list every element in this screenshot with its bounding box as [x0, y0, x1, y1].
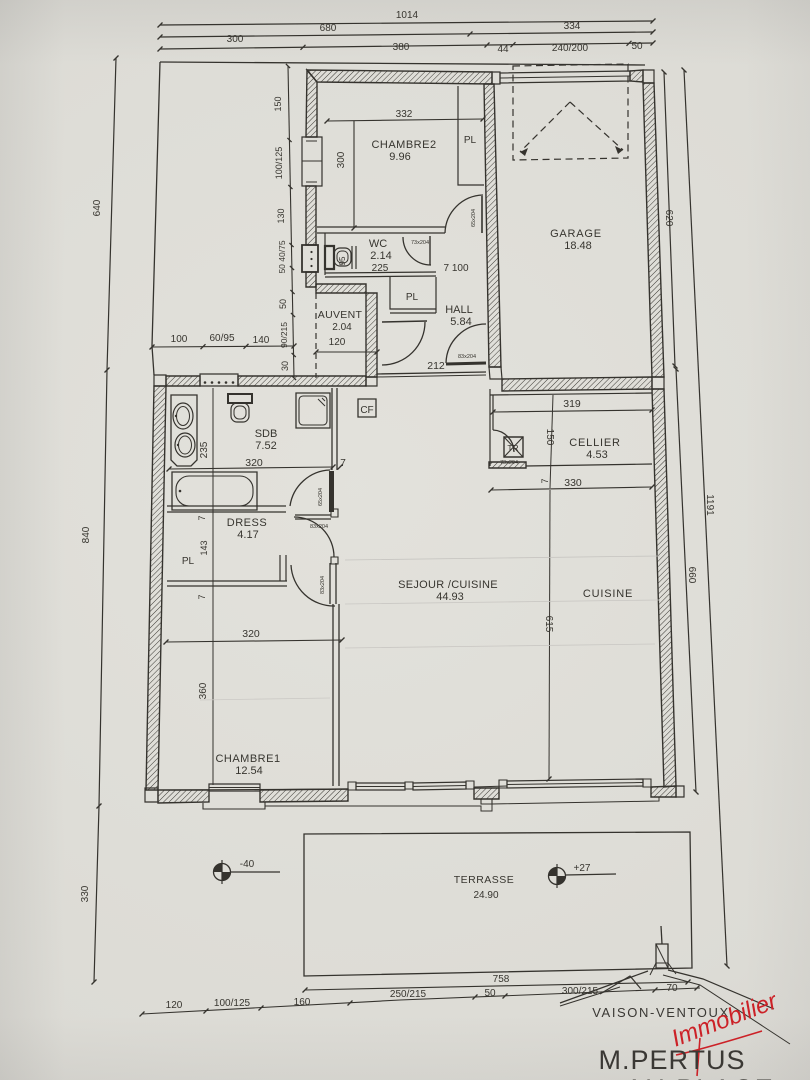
svg-text:7: 7 [540, 478, 550, 483]
svg-text:1014: 1014 [396, 10, 419, 21]
svg-text:100/125: 100/125 [214, 998, 251, 1009]
svg-text:332: 332 [396, 109, 413, 120]
svg-text:SEJOUR /CUISINE: SEJOUR /CUISINE [398, 579, 498, 591]
svg-text:CF: CF [360, 405, 373, 416]
svg-text:7: 7 [197, 515, 207, 520]
svg-text:330: 330 [80, 885, 91, 902]
svg-text:DRESS: DRESS [227, 517, 267, 529]
svg-text:7: 7 [197, 594, 207, 599]
svg-text:840: 840 [81, 526, 92, 543]
svg-text:2.04: 2.04 [332, 322, 352, 333]
svg-text:70: 70 [666, 983, 678, 994]
svg-text:240/200: 240/200 [552, 43, 589, 54]
svg-text:AUVENT: AUVENT [318, 309, 363, 321]
svg-text:7.52: 7.52 [255, 440, 276, 452]
svg-text:9.96: 9.96 [389, 151, 410, 163]
svg-text:360: 360 [198, 682, 209, 699]
svg-text:HALL: HALL [445, 304, 473, 316]
svg-text:GARAGE: GARAGE [550, 228, 602, 240]
svg-text:334: 334 [564, 21, 581, 32]
svg-text:100: 100 [171, 334, 188, 345]
svg-text:120: 120 [329, 337, 346, 348]
svg-text:250/215: 250/215 [390, 989, 427, 1000]
svg-text:380: 380 [393, 42, 410, 53]
svg-text:300: 300 [336, 151, 347, 168]
svg-text:12.54: 12.54 [235, 765, 263, 777]
svg-text:2.14: 2.14 [370, 250, 391, 262]
svg-text:5.84: 5.84 [450, 316, 471, 328]
svg-text:90/215: 90/215 [279, 322, 289, 348]
svg-text:CUISINE: CUISINE [583, 588, 633, 600]
svg-text:330: 330 [564, 477, 582, 489]
svg-text:640: 640 [92, 199, 103, 216]
svg-text:CHAMBRE2: CHAMBRE2 [371, 139, 436, 151]
svg-text:4.17: 4.17 [237, 529, 258, 541]
svg-text:WC: WC [369, 238, 387, 250]
svg-text:83x204: 83x204 [310, 524, 328, 530]
svg-text:PL: PL [182, 556, 195, 567]
svg-text:PL: PL [464, 135, 477, 146]
svg-text:M.PERTUS: M.PERTUS [598, 1045, 745, 1075]
svg-text:AU PLACE: AU PLACE [625, 1074, 775, 1080]
svg-text:44: 44 [497, 44, 509, 55]
svg-text:680: 680 [320, 23, 337, 34]
svg-text:758: 758 [493, 974, 510, 985]
svg-text:1191: 1191 [704, 494, 715, 516]
svg-text:95: 95 [338, 256, 347, 265]
svg-text:65x204: 65x204 [471, 209, 477, 227]
svg-text:50 40/75: 50 40/75 [277, 240, 287, 273]
svg-text:44.93: 44.93 [436, 591, 464, 603]
svg-text:320: 320 [245, 457, 263, 469]
svg-text:120: 120 [166, 1000, 183, 1011]
svg-text:18.48: 18.48 [564, 240, 592, 252]
svg-text:CELLIER: CELLIER [569, 437, 620, 449]
svg-text:100/125: 100/125 [274, 147, 284, 180]
svg-text:143: 143 [199, 540, 209, 555]
svg-text:235: 235 [199, 441, 210, 458]
svg-text:4.53: 4.53 [586, 449, 607, 461]
svg-text:7 100: 7 100 [443, 263, 468, 274]
svg-text:7: 7 [340, 458, 346, 469]
svg-text:150: 150 [273, 96, 283, 111]
svg-text:+27: +27 [574, 863, 591, 874]
svg-text:50: 50 [631, 41, 643, 52]
svg-text:24.90: 24.90 [473, 890, 498, 901]
svg-text:-40: -40 [240, 859, 255, 870]
svg-text:TERRASSE: TERRASSE [454, 874, 515, 886]
svg-text:PL: PL [406, 292, 419, 303]
svg-text:83x204: 83x204 [458, 354, 476, 360]
svg-text:30: 30 [280, 361, 290, 371]
svg-text:83x204: 83x204 [320, 576, 326, 594]
svg-text:140: 140 [253, 335, 270, 346]
svg-text:620: 620 [663, 210, 674, 227]
svg-text:212: 212 [427, 360, 445, 372]
svg-text:60/95: 60/95 [209, 333, 234, 344]
svg-text:319: 319 [563, 398, 581, 410]
svg-text:CHAMBRE1: CHAMBRE1 [215, 753, 280, 765]
svg-text:150: 150 [544, 429, 555, 446]
svg-text:65x204: 65x204 [318, 488, 324, 506]
svg-text:73x204: 73x204 [411, 240, 429, 246]
svg-text:50: 50 [278, 299, 288, 309]
svg-text:160: 160 [294, 997, 311, 1008]
svg-text:300: 300 [227, 34, 244, 45]
svg-text:130: 130 [276, 208, 286, 223]
svg-text:320: 320 [242, 628, 260, 640]
svg-text:50: 50 [484, 988, 496, 999]
svg-text:615: 615 [543, 616, 554, 633]
svg-text:SDB: SDB [255, 428, 278, 440]
svg-text:660: 660 [686, 567, 697, 584]
